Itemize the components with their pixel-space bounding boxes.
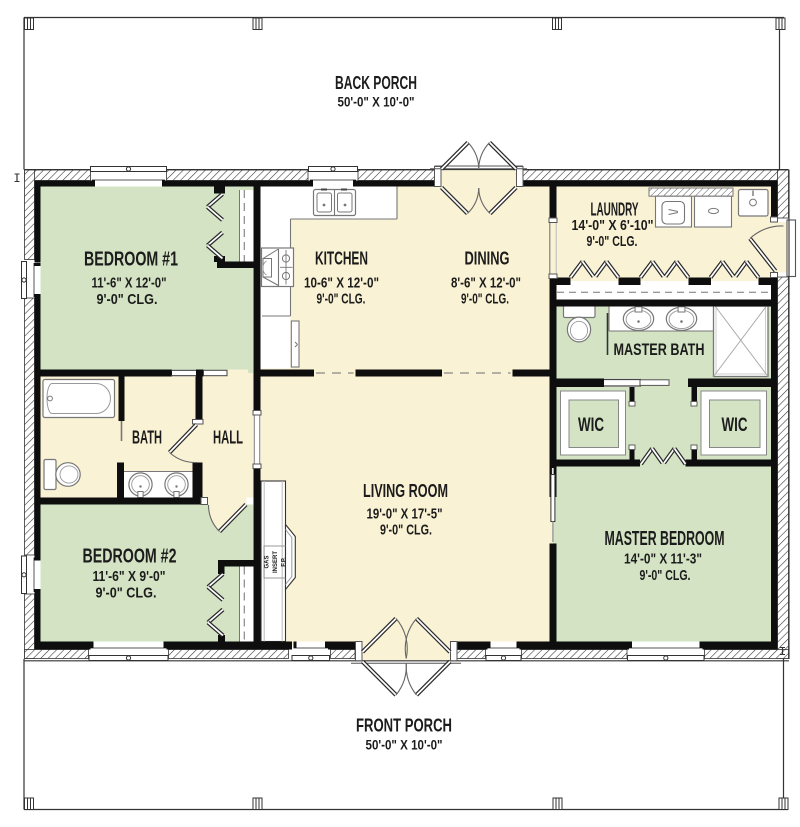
svg-text:MASTER BEDROOM: MASTER BEDROOM [605, 528, 725, 550]
svg-text:10-6" X 12'-0": 10-6" X 12'-0" [304, 275, 379, 292]
svg-text:DINING: DINING [465, 248, 510, 269]
svg-text:11'-6" X 9'-0": 11'-6" X 9'-0" [93, 568, 166, 585]
svg-text:WIC: WIC [578, 415, 604, 436]
svg-text:INSERT: INSERT [273, 551, 279, 573]
svg-text:14'-0" X 6'-10": 14'-0" X 6'-10" [572, 217, 654, 234]
svg-text:BACK PORCH: BACK PORCH [335, 72, 417, 93]
svg-text:HALL: HALL [213, 427, 243, 448]
svg-text:9'-0" CLG.: 9'-0" CLG. [96, 585, 157, 602]
svg-text:50'-0" X 10'-0": 50'-0" X 10'-0" [366, 737, 443, 753]
svg-text:GAS: GAS [265, 555, 271, 568]
svg-text:F.P.: F.P. [281, 557, 287, 567]
svg-text:LIVING ROOM: LIVING ROOM [363, 480, 448, 501]
svg-text:8'-6" X 12'-0": 8'-6" X 12'-0" [451, 275, 521, 292]
svg-text:14'-0" X 11'-3": 14'-0" X 11'-3" [624, 551, 702, 568]
svg-text:11'-6" X 12'-0": 11'-6" X 12'-0" [92, 275, 167, 292]
svg-text:FRONT PORCH: FRONT PORCH [356, 715, 452, 736]
svg-text:50'-0" X 10'-0": 50'-0" X 10'-0" [338, 94, 415, 110]
svg-text:19'-0" X 17'-5": 19'-0" X 17'-5" [367, 506, 443, 523]
svg-text:MASTER BATH: MASTER BATH [614, 340, 705, 359]
svg-text:9'-0" CLG.: 9'-0" CLG. [317, 291, 366, 308]
svg-text:9'-0" CLG.: 9'-0" CLG. [640, 567, 691, 584]
svg-text:9'-0" CLG.: 9'-0" CLG. [587, 233, 638, 250]
svg-text:9'-0" CLG.: 9'-0" CLG. [97, 291, 158, 308]
svg-text:9'-0" CLG.: 9'-0" CLG. [461, 291, 509, 308]
svg-text:BEDROOM #1: BEDROOM #1 [84, 249, 178, 271]
svg-text:KITCHEN: KITCHEN [315, 248, 368, 269]
svg-text:WIC: WIC [722, 415, 748, 436]
svg-text:9'-0" CLG.: 9'-0" CLG. [380, 522, 432, 539]
svg-text:BATH: BATH [132, 427, 162, 448]
svg-text:BEDROOM #2: BEDROOM #2 [83, 546, 177, 568]
